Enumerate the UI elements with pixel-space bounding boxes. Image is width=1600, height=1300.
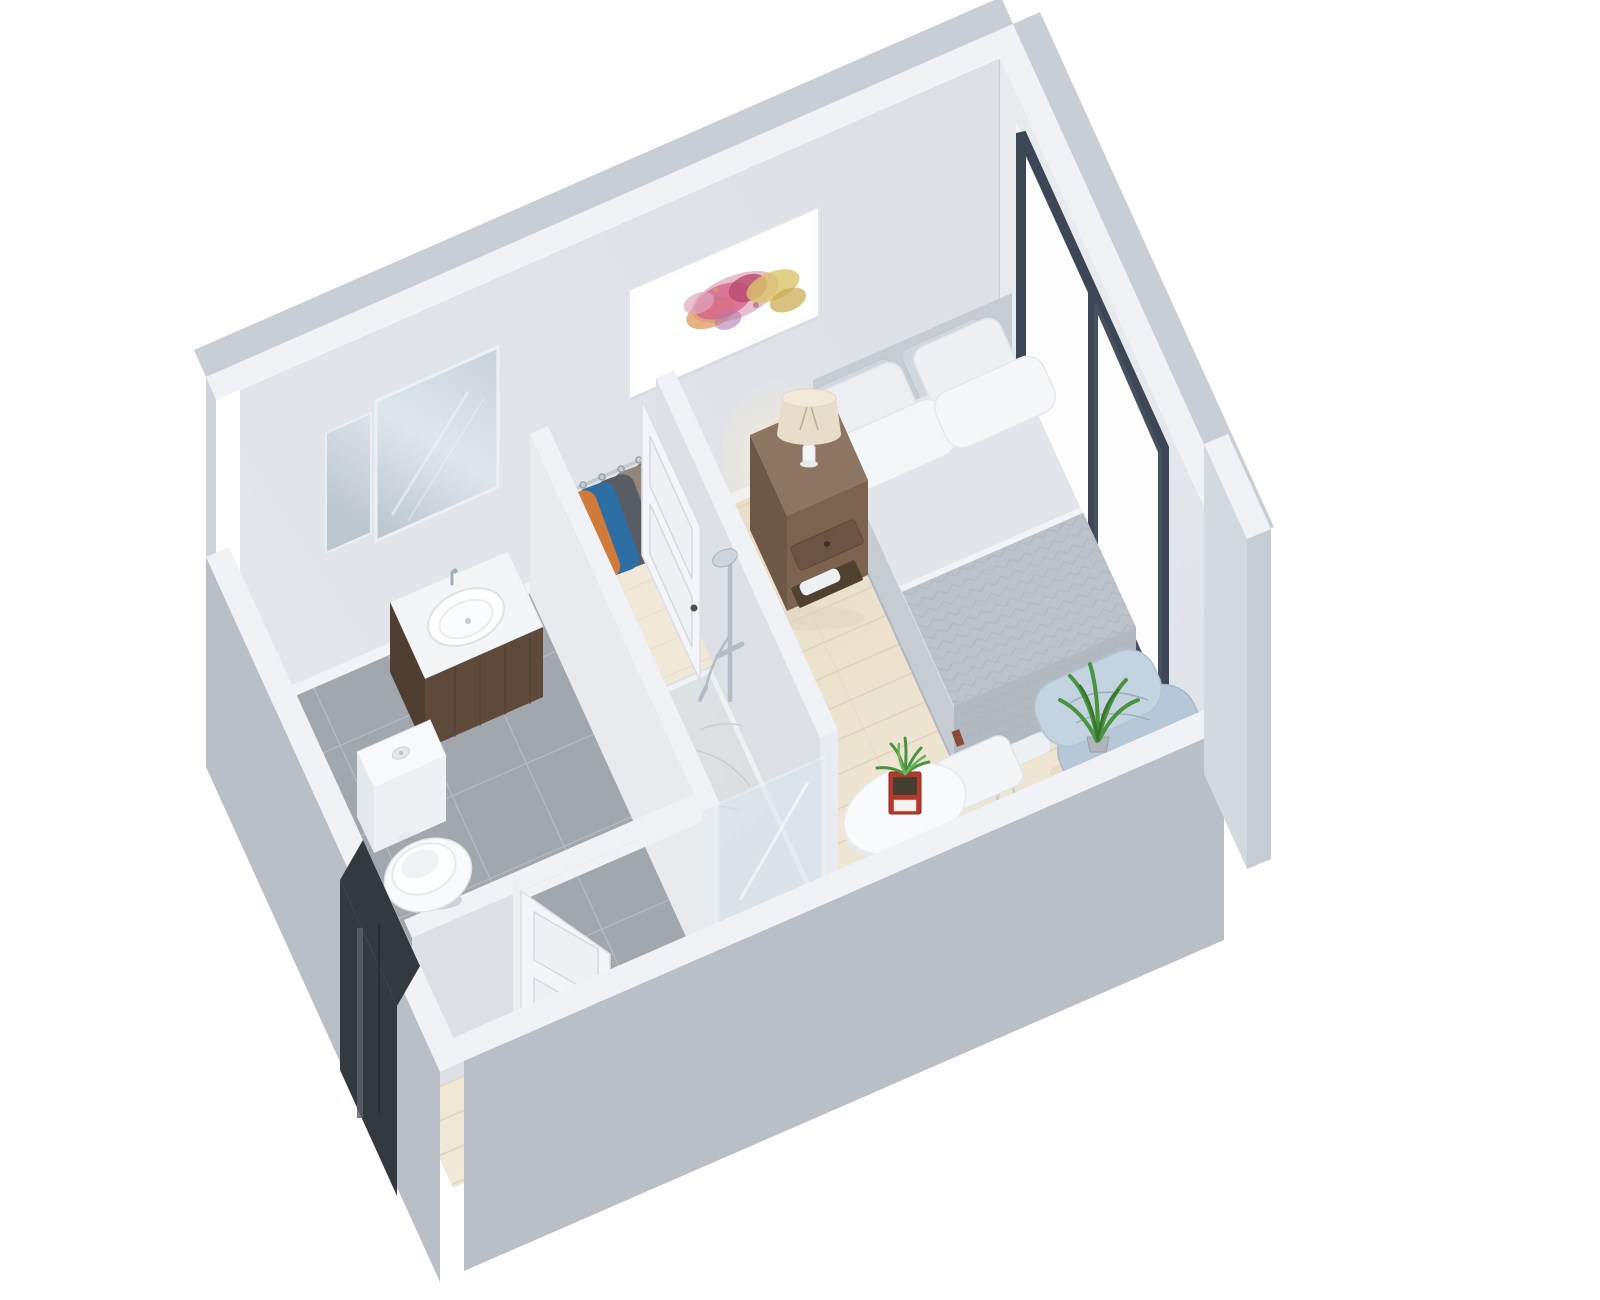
drawer-knob [824, 541, 830, 547]
planter-graphic [893, 777, 917, 795]
lamp-base [803, 445, 815, 463]
sink-faucet-head [453, 569, 458, 574]
floorplan-svg [0, 0, 1600, 1300]
floorplan-render [0, 0, 1600, 1300]
lamp-shade-top [782, 389, 836, 407]
mirror-niche [326, 413, 371, 553]
closet-door-handle [691, 605, 698, 612]
lamp-foot [800, 461, 818, 468]
planter-label [894, 800, 916, 811]
pillar-face-se [1247, 529, 1271, 869]
toilet-flush-dot [399, 751, 403, 755]
sink-drain [465, 618, 471, 624]
